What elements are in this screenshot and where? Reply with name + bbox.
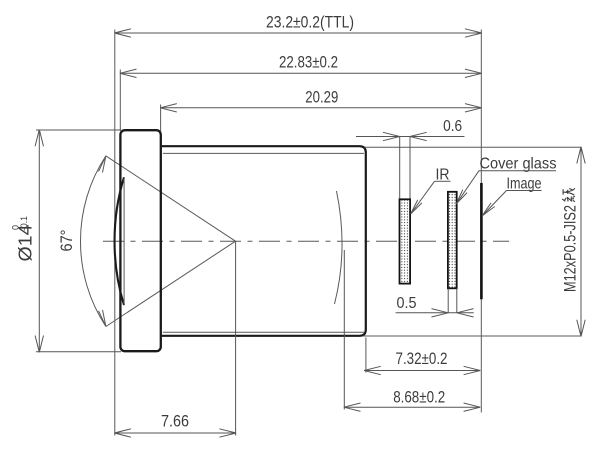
svg-text:20.29: 20.29 <box>305 88 338 107</box>
svg-text:7.32±0.2: 7.32±0.2 <box>396 349 448 368</box>
svg-text:8.68±0.2: 8.68±0.2 <box>393 388 445 407</box>
svg-text:23.2±0.2(TTL): 23.2±0.2(TTL) <box>266 13 354 32</box>
svg-text:Cover glass: Cover glass <box>480 156 557 173</box>
svg-text:M12xP0.5-JIS2: M12xP0.5-JIS2 <box>562 205 580 292</box>
svg-text:67°: 67° <box>57 230 76 252</box>
svg-text:0.5: 0.5 <box>397 295 417 312</box>
svg-text:7.66: 7.66 <box>161 412 189 431</box>
svg-text:Image: Image <box>507 176 542 193</box>
svg-text:0.6: 0.6 <box>443 118 462 135</box>
svg-text:22.83±0.2: 22.83±0.2 <box>279 53 338 72</box>
svg-text:-0.1: -0.1 <box>19 216 29 231</box>
